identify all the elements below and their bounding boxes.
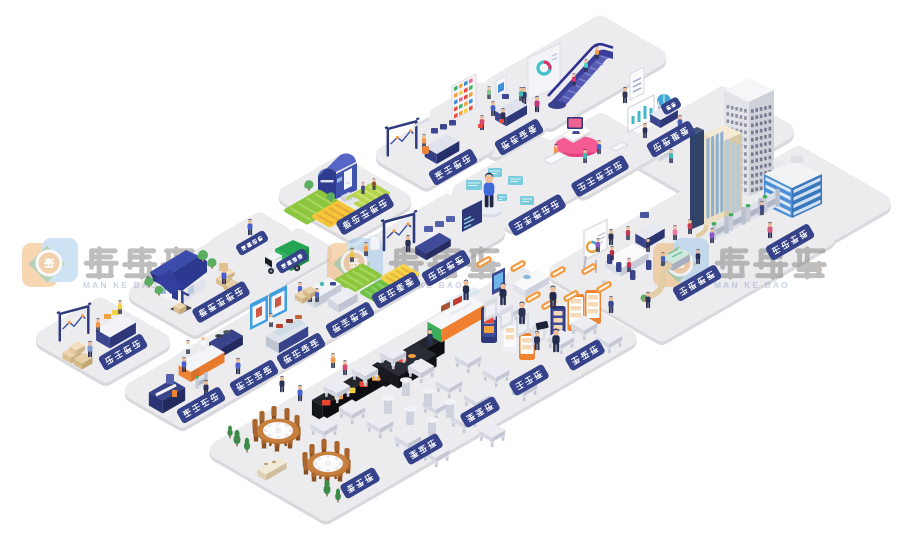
svg-text:MAN KE BAO: MAN KE BAO — [714, 280, 790, 290]
